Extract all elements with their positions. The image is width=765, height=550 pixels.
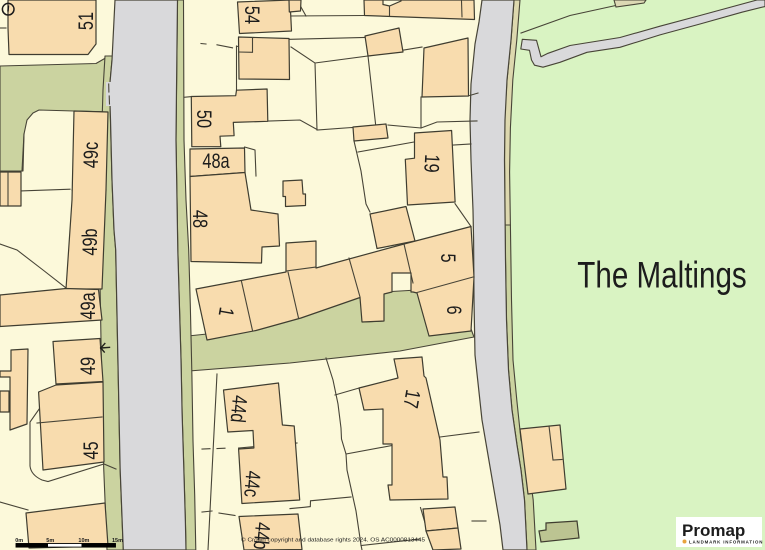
svg-text:49c: 49c (79, 142, 102, 168)
svg-text:54: 54 (240, 6, 263, 24)
svg-text:The Maltings: The Maltings (577, 256, 746, 297)
svg-text:49b: 49b (78, 228, 101, 255)
svg-text:50: 50 (192, 110, 215, 128)
svg-text:44c: 44c (240, 470, 266, 498)
svg-text:6: 6 (442, 305, 465, 314)
svg-text:19: 19 (420, 154, 444, 173)
svg-text:LANDMARK INFORMATION: LANDMARK INFORMATION (689, 540, 763, 545)
svg-text:51: 51 (74, 12, 97, 30)
svg-text:© Crown copyright and database: © Crown copyright and database rights 20… (241, 537, 425, 544)
svg-text:44d: 44d (226, 394, 252, 423)
svg-text:44b: 44b (249, 521, 275, 550)
svg-text:48a: 48a (202, 149, 230, 172)
svg-text:49: 49 (76, 357, 99, 375)
svg-text:5: 5 (436, 253, 459, 262)
svg-text:45: 45 (79, 441, 102, 459)
svg-text:49a: 49a (76, 292, 99, 320)
svg-text:48: 48 (188, 210, 211, 228)
svg-text:Promap: Promap (682, 521, 745, 540)
